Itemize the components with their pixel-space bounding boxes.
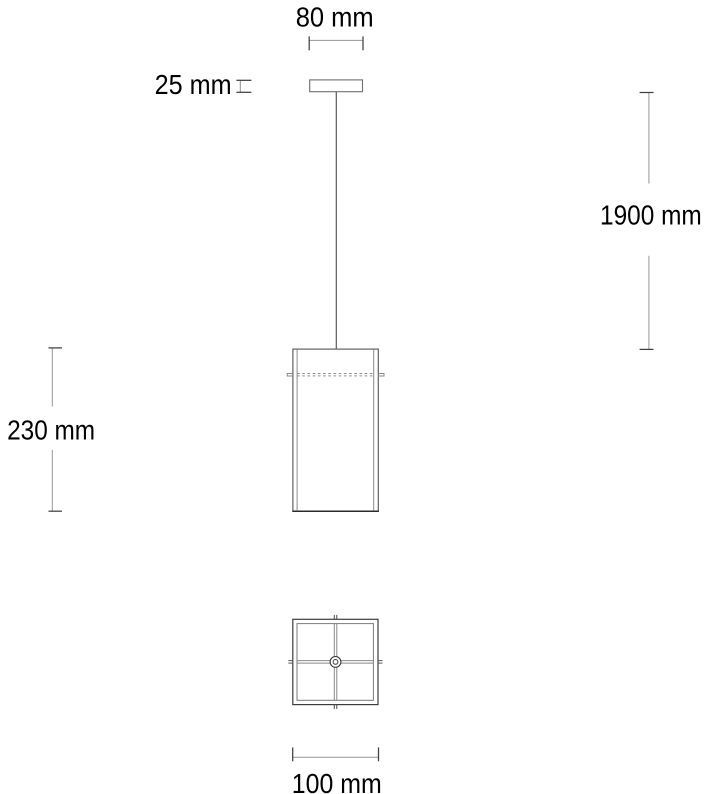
svg-text:80 mm: 80 mm	[296, 1, 374, 32]
svg-text:100 mm: 100 mm	[292, 768, 382, 794]
svg-text:1900 mm: 1900 mm	[600, 199, 702, 230]
svg-text:25 mm: 25 mm	[155, 69, 232, 100]
svg-text:230 mm: 230 mm	[7, 415, 95, 446]
